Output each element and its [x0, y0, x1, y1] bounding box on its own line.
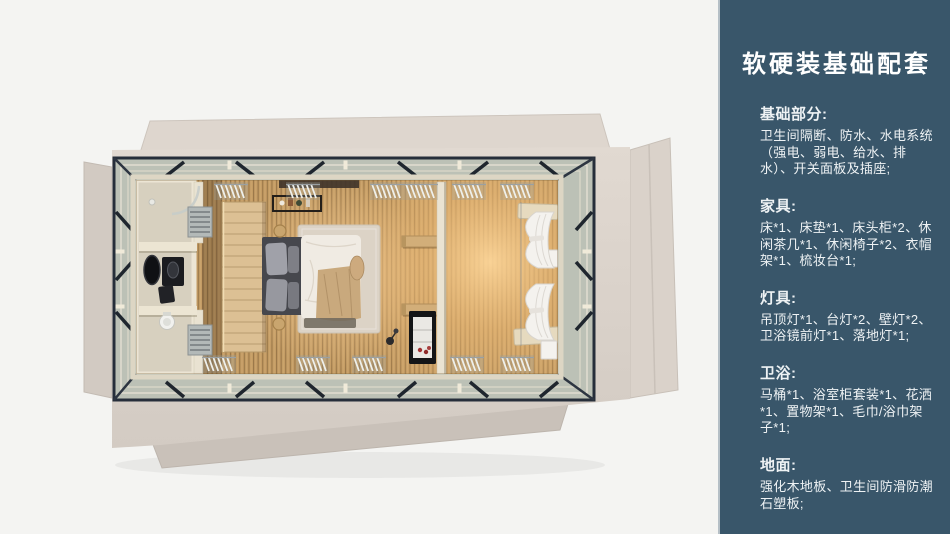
- panel-title: 软硬装基础配套: [742, 44, 934, 79]
- spec-section-furniture: 家具: 床*1、床垫*1、床头柜*2、休闲茶几*1、休闲椅子*2、衣帽架*1、梳…: [760, 195, 934, 270]
- wardrobe: [222, 202, 266, 352]
- pillow: [288, 246, 299, 273]
- floorplan-render: [0, 0, 718, 534]
- spec-heading: 地面:: [760, 454, 934, 475]
- clothes-on-bed: [350, 256, 364, 280]
- shell-flap-top: [140, 114, 610, 153]
- towel-rack: [188, 325, 212, 355]
- pillow: [288, 282, 299, 309]
- bed: [262, 235, 364, 328]
- bed-end-bench: [304, 318, 356, 328]
- bathroom-shelf: [139, 242, 197, 251]
- shell-flap-left: [84, 162, 112, 398]
- display-cabinet: [409, 311, 436, 364]
- spec-body: 床*1、床垫*1、床头柜*2、休闲茶几*1、休闲椅子*2、衣帽架*1、梳妆台*1…: [760, 220, 934, 270]
- wall-shelf: [402, 236, 438, 248]
- vanity-mirror: [144, 256, 160, 285]
- spec-body: 马桶*1、浴室柜套装*1、花洒*1、置物架*1、毛巾/浴巾架子*1;: [760, 387, 934, 437]
- spec-heading: 卫浴:: [760, 362, 934, 383]
- spec-heading: 基础部分:: [760, 103, 934, 124]
- side-table: [274, 225, 286, 237]
- spec-section-basics: 基础部分: 卫生间隔断、防水、水电系统（强电、弱电、给水、排水）、开关面板及插座…: [760, 103, 934, 178]
- vanity-stool: [158, 285, 175, 304]
- spec-heading: 灯具:: [760, 287, 934, 308]
- spec-heading: 家具:: [760, 195, 934, 216]
- spec-body: 吊顶灯*1、台灯*2、壁灯*2、卫浴镜前灯*1、落地灯*1;: [760, 312, 934, 345]
- spec-body: 卫生间隔断、防水、水电系统（强电、弱电、给水、排水）、开关面板及插座;: [760, 128, 934, 178]
- nightstand: [541, 341, 557, 359]
- spec-section-bathroom: 卫浴: 马桶*1、浴室柜套装*1、花洒*1、置物架*1、毛巾/浴巾架子*1;: [760, 362, 934, 437]
- toilet-hinge: [163, 312, 171, 316]
- floorplan-svg: [0, 0, 718, 534]
- side-table: [273, 318, 285, 330]
- room-interior: [136, 179, 560, 374]
- spec-body: 强化木地板、卫生间防滑防潮石塑板;: [760, 479, 934, 512]
- spec-section-lighting: 灯具: 吊顶灯*1、台灯*2、壁灯*2、卫浴镜前灯*1、落地灯*1;: [760, 287, 934, 345]
- towel-rack: [188, 207, 212, 237]
- spec-panel: 软硬装基础配套 基础部分: 卫生间隔断、防水、水电系统（强电、弱电、给水、排水）…: [718, 0, 950, 534]
- spec-section-flooring: 地面: 强化木地板、卫生间防滑防潮石塑板;: [760, 454, 934, 512]
- pillow: [265, 278, 288, 311]
- slide: 软硬装基础配套 基础部分: 卫生间隔断、防水、水电系统（强电、弱电、给水、排水）…: [0, 0, 950, 534]
- vanity-sink: [168, 262, 179, 278]
- shower-drain: [149, 199, 155, 205]
- pillow: [265, 242, 288, 275]
